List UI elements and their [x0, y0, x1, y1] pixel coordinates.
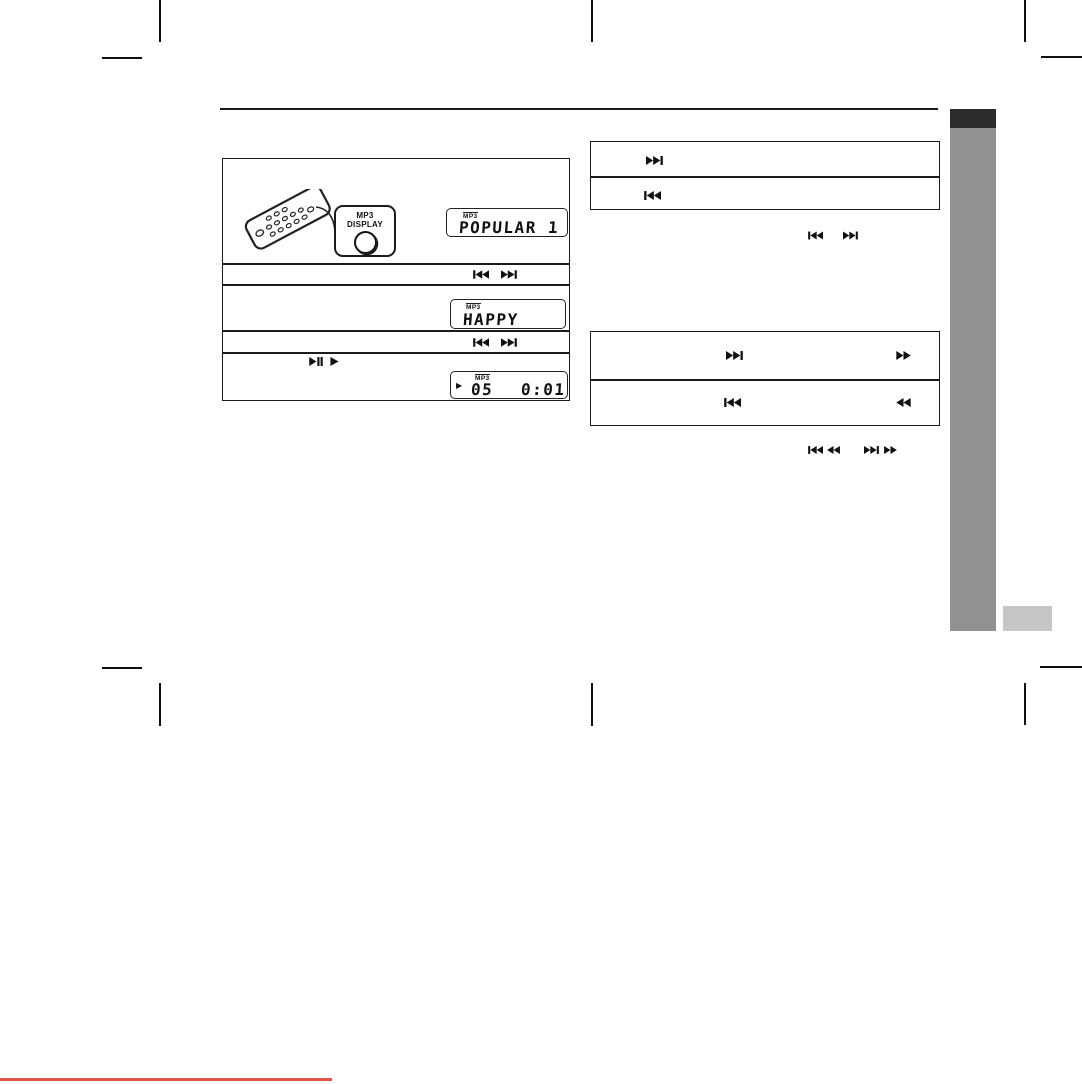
crop-mark-top-v2	[591, 0, 593, 42]
skip-forward-icon	[501, 270, 517, 279]
lcd-display-happy: MP3 HAPPY	[450, 299, 566, 329]
right-top-instruction-box	[590, 141, 940, 210]
left-instruction-box: MP3 DISPLAY MP3 POPULAR 1 MP3 HAPPY	[222, 158, 570, 401]
row-divider	[223, 352, 569, 354]
play-pause-icon	[309, 357, 323, 366]
crop-mark-bottom-h-left	[102, 667, 142, 669]
lcd-display-track-time: ▶ MP3 05 0:01	[450, 371, 568, 399]
sidebar-dark-tab	[950, 109, 996, 128]
skip-forward-icon	[864, 446, 879, 454]
callout-label-line2: DISPLAY	[336, 220, 394, 229]
lcd-time: 0:01	[520, 380, 566, 399]
sidebar-light-tab	[1003, 606, 1052, 631]
lcd-track-number: 05	[470, 380, 494, 399]
crop-mark-bottom-v2	[591, 683, 593, 726]
crop-mark-top-v3	[1024, 0, 1026, 42]
sidebar-gray-bar	[950, 128, 996, 631]
crop-mark-bottom-h-right	[1040, 666, 1082, 668]
skip-back-icon	[644, 191, 661, 200]
skip-back-icon	[473, 338, 489, 347]
play-icon	[330, 357, 339, 366]
row-divider	[223, 263, 569, 265]
skip-back-icon	[808, 446, 823, 454]
row-divider	[223, 284, 569, 286]
play-indicator-icon: ▶	[456, 382, 462, 390]
crop-mark-bottom-v1	[159, 683, 161, 726]
callout-label-line1: MP3	[336, 211, 394, 220]
crop-mark-top-h-right	[1041, 56, 1082, 58]
lcd-text: HAPPY	[462, 310, 519, 329]
skip-forward-icon	[501, 338, 517, 347]
crop-mark-top-h-left	[102, 57, 142, 59]
crop-mark-top-v1	[159, 0, 161, 42]
row-divider	[591, 379, 939, 381]
row-divider	[591, 176, 939, 178]
skip-back-icon	[473, 270, 489, 279]
skip-back-icon	[724, 398, 741, 407]
row-divider	[223, 330, 569, 332]
header-rule	[220, 108, 938, 110]
rewind-icon	[827, 446, 840, 454]
scan-red-line	[0, 1078, 332, 1081]
manual-page: MP3 DISPLAY MP3 POPULAR 1 MP3 HAPPY	[0, 0, 1082, 1084]
lcd-text: POPULAR 1	[458, 218, 560, 237]
right-bottom-instruction-box	[590, 331, 940, 426]
skip-back-icon	[808, 231, 823, 240]
mp3-display-button-icon	[354, 231, 377, 254]
fast-forward-icon	[896, 351, 911, 360]
skip-forward-icon	[646, 156, 663, 165]
rewind-icon	[896, 398, 911, 407]
skip-forward-icon	[726, 351, 743, 360]
fast-forward-icon	[884, 446, 897, 454]
crop-mark-bottom-v3	[1024, 683, 1026, 725]
skip-forward-icon	[843, 231, 858, 240]
lcd-display-popular: MP3 POPULAR 1	[446, 208, 568, 237]
mp3-display-button-callout: MP3 DISPLAY	[334, 205, 396, 257]
